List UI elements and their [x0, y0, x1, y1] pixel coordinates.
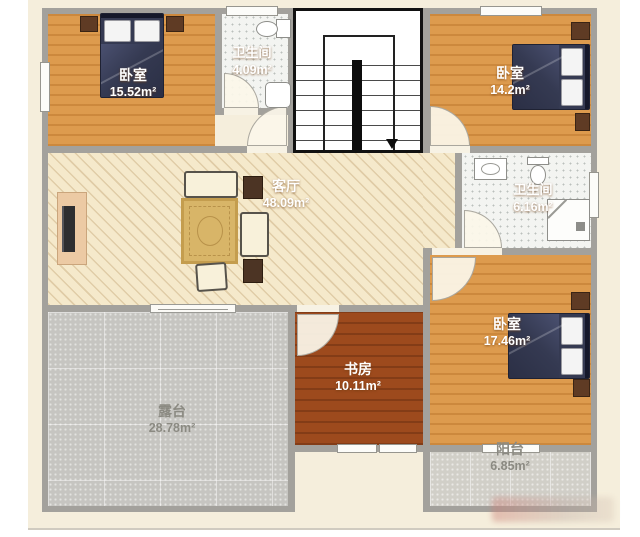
floor-plan: 卧室 15.52m² 卫生间 4.09m² 卧室 14.2m² 客厅 48.09… — [0, 0, 640, 537]
watermark-blur — [492, 497, 614, 522]
room-label-study: 书房 10.11m² — [335, 360, 381, 394]
door-opening — [430, 146, 470, 153]
room-name: 露台 — [158, 403, 186, 419]
door-opening — [432, 248, 476, 255]
room-area: 17.46m² — [484, 333, 531, 349]
room-area: 6.16m² — [513, 199, 553, 215]
tv — [62, 206, 75, 252]
window — [40, 62, 50, 112]
window — [337, 444, 377, 453]
room-name: 客厅 — [272, 178, 300, 194]
sliding-door — [150, 304, 236, 313]
toilet — [256, 21, 278, 37]
wall — [455, 153, 462, 255]
room-name: 卧室 — [496, 65, 524, 81]
window — [379, 444, 417, 453]
loveseat — [240, 212, 269, 257]
staircase-symbol — [293, 8, 423, 153]
room-label-living-room: 客厅 48.09m² — [263, 177, 310, 211]
door-opening — [247, 146, 287, 153]
shower — [547, 199, 590, 241]
wall — [591, 8, 597, 512]
toilet-tank — [527, 157, 549, 165]
room-label-terrace: 露台 28.78m² — [149, 402, 196, 436]
room-label-bedroom-top-left: 卧室 15.52m² — [110, 66, 157, 100]
nightstand — [573, 379, 590, 397]
wall — [288, 312, 295, 506]
room-area: 10.11m² — [335, 378, 381, 394]
room-label-balcony: 阳台 6.85m² — [490, 440, 530, 474]
room-area: 15.52m² — [110, 84, 157, 100]
room-label-bedroom-bottom-right: 卧室 17.46m² — [484, 315, 531, 349]
wall — [215, 14, 222, 115]
room-name: 卧室 — [493, 316, 521, 332]
nightstand — [575, 113, 590, 131]
room-name: 卫生间 — [513, 182, 552, 197]
window — [589, 172, 599, 218]
room-area: 48.09m² — [263, 195, 310, 211]
room-label-bathroom-right: 卫生间 6.16m² — [513, 182, 553, 215]
window — [226, 6, 278, 16]
wall — [288, 445, 597, 452]
nightstand — [571, 292, 590, 310]
room-area: 14.2m² — [490, 82, 530, 98]
side-table — [243, 259, 263, 283]
room-name: 卫生间 — [232, 45, 271, 60]
rug — [181, 198, 238, 264]
room-label-bedroom-top-right: 卧室 14.2m² — [490, 64, 530, 98]
door-opening — [224, 108, 258, 115]
stair-down-arrow-icon — [386, 139, 398, 149]
door-opening — [297, 305, 339, 312]
room-area: 4.09m² — [232, 62, 272, 78]
armchair — [195, 262, 228, 292]
nightstand — [571, 22, 590, 40]
wall — [42, 506, 295, 512]
bathtub — [265, 82, 291, 108]
room-name: 阳台 — [496, 441, 524, 457]
wall — [423, 14, 430, 146]
wall — [48, 305, 430, 312]
sofa — [184, 171, 238, 198]
toilet-tank — [276, 19, 291, 38]
room-area: 6.85m² — [490, 458, 530, 474]
side-table — [243, 176, 263, 199]
room-name: 书房 — [344, 361, 372, 377]
room-area: 28.78m² — [149, 420, 196, 436]
sink — [474, 158, 507, 180]
nightstand — [166, 16, 184, 32]
wall — [423, 255, 430, 452]
nightstand — [80, 16, 98, 32]
room-name: 卧室 — [119, 67, 147, 83]
stair-railing — [352, 60, 362, 150]
wall — [423, 452, 430, 512]
room-label-bathroom-top: 卫生间 4.09m² — [232, 45, 272, 78]
window — [480, 6, 542, 16]
